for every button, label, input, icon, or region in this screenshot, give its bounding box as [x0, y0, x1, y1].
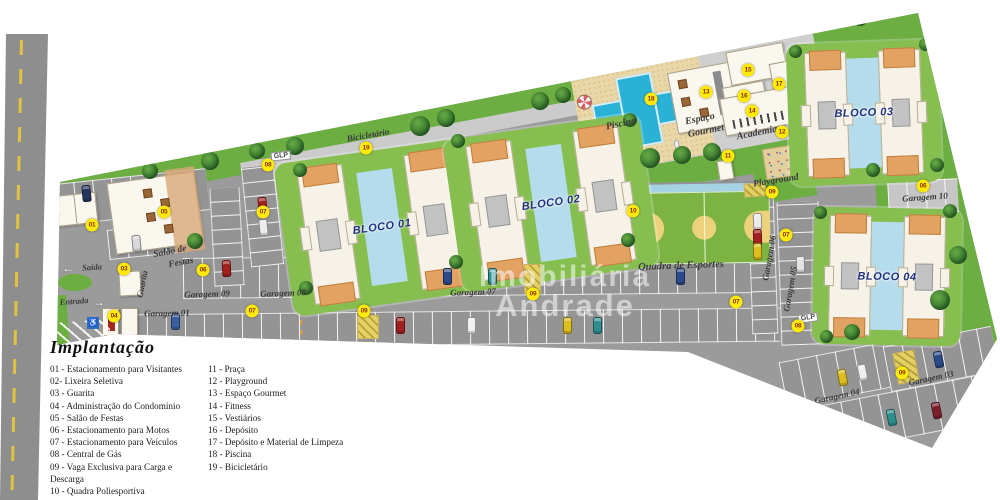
tree-icon	[555, 87, 571, 103]
legend-marker-10: 10	[627, 205, 640, 218]
tree-icon	[293, 163, 307, 177]
tree-icon	[852, 10, 868, 26]
legend-marker-05: 05	[158, 206, 171, 219]
legend-marker-08: 08	[262, 159, 275, 172]
table	[677, 79, 688, 90]
legend-marker-17: 17	[773, 78, 786, 91]
map-label: Entrada	[59, 295, 88, 307]
car	[221, 259, 231, 276]
exit-arrow-icon: ←	[62, 261, 74, 275]
legend-marker-04: 04	[108, 310, 121, 323]
umbrella-icon	[576, 93, 594, 111]
tree-icon	[673, 146, 691, 164]
tree-icon	[866, 163, 880, 177]
table	[146, 212, 156, 222]
table	[164, 224, 174, 234]
tree-icon	[640, 148, 660, 168]
tree-icon	[201, 152, 219, 170]
legend-marker-12: 12	[776, 126, 789, 139]
legend-item: 09 - Vaga Exclusiva para Carga e Descarg…	[50, 461, 208, 485]
tree-icon	[844, 324, 860, 340]
tree-icon	[451, 134, 465, 148]
tree-icon	[249, 143, 265, 159]
watermark: Imobiliária Andrade	[395, 262, 735, 321]
legend: Implantação 01 - Estacionamento para Vis…	[50, 337, 480, 497]
map-label: Garagem 09	[184, 288, 230, 300]
legend-marker-07: 07	[257, 206, 270, 219]
legend-item: 04 - Administração do Condomínio	[50, 400, 208, 412]
tree-icon	[790, 13, 810, 33]
legend-marker-19: 19	[360, 142, 373, 155]
legend-marker-11: 11	[722, 150, 735, 163]
legend-marker-09: 09	[766, 186, 779, 199]
tree-icon	[814, 206, 827, 219]
legend-marker-07: 07	[780, 229, 793, 242]
legend-item: 03 - Guarita	[50, 387, 208, 399]
loading-zone-hatch	[357, 315, 379, 339]
tree-icon	[789, 45, 802, 58]
tree-icon	[410, 116, 430, 136]
tree-icon	[437, 109, 455, 127]
tree-icon	[621, 233, 635, 247]
site-plan: ♿	[0, 0, 1000, 500]
legend-marker-15: 15	[742, 64, 755, 77]
car	[752, 242, 762, 259]
block-bloco-04: BLOCO 04	[812, 207, 962, 347]
legend-item: 15 - Vestiários	[208, 412, 343, 424]
legend-item: 11 - Praça	[208, 363, 343, 375]
entrance-arrow-icon: →	[93, 295, 105, 309]
legend-marker-01: 01	[86, 219, 99, 232]
car	[258, 218, 269, 236]
tree-icon	[930, 158, 944, 172]
legend-marker-07: 07	[730, 296, 743, 309]
map-label: Garagem 08	[260, 287, 306, 299]
legend-marker-08: 08	[792, 320, 805, 333]
legend-item: 12 - Playground	[208, 375, 343, 387]
car	[81, 184, 92, 202]
legend-item: 16 - Depósito	[208, 424, 343, 436]
block-bloco-03: BLOCO 03	[786, 39, 943, 186]
car	[131, 234, 142, 252]
exit-island	[58, 274, 92, 291]
legend-item: 01 - Estacionamento para Visitantes	[50, 363, 208, 375]
road-centerline	[10, 40, 22, 498]
legend-item: 19 - Bicicletário	[208, 461, 343, 473]
legend-title: Implantação	[50, 337, 480, 358]
bloco-label: BLOCO 04	[857, 270, 916, 283]
legend-marker-13: 13	[700, 86, 713, 99]
map-label: Saída	[82, 261, 102, 272]
legend-marker-09: 09	[358, 305, 371, 318]
legend-item: 08 - Central de Gás	[50, 448, 208, 460]
legend-marker-18: 18	[645, 93, 658, 106]
legend-marker-09: 09	[527, 288, 540, 301]
tree-icon	[919, 38, 932, 51]
tree-icon	[820, 330, 833, 343]
legend-item: 13 - Espaço Gourmet	[208, 387, 343, 399]
map-label: Garagem 01	[144, 308, 190, 319]
legend-column-2: 11 - Praça12 - Playground13 - Espaço Gou…	[208, 363, 343, 497]
legend-item: 10 - Quadra Poliesportiva	[50, 485, 208, 497]
legend-item: 07 - Estacionamento para Veículos	[50, 436, 208, 448]
legend-item: 17 - Depósito e Material de Limpeza	[208, 436, 343, 448]
tree-icon	[531, 92, 549, 110]
admin-building-2	[121, 308, 138, 336]
legend-marker-09: 09	[896, 367, 909, 380]
legend-item: 14 - Fitness	[208, 400, 343, 412]
watermark-line2: Andrade	[395, 290, 735, 321]
legend-item: 02- Lixeira Seletiva	[50, 375, 208, 387]
tree-icon	[187, 233, 203, 249]
legend-item: 05 - Salão de Festas	[50, 412, 208, 424]
tree-icon	[703, 143, 721, 161]
tree-icon	[943, 204, 957, 218]
map-label: Garagem 02	[789, 409, 836, 428]
table	[143, 188, 153, 198]
handicap-space: ♿	[87, 317, 99, 329]
legend-marker-06: 06	[917, 180, 930, 193]
tree-icon	[949, 246, 967, 264]
legend-marker-02: 02	[43, 215, 56, 228]
table	[681, 97, 692, 108]
bloco-label: BLOCO 03	[834, 106, 893, 120]
legend-item: 06 - Estacionamento para Motos	[50, 424, 208, 436]
legend-marker-14: 14	[746, 105, 759, 118]
tree-icon	[945, 110, 965, 130]
legend-marker-06: 06	[197, 264, 210, 277]
tree-icon	[930, 290, 950, 310]
legend-column-1: 01 - Estacionamento para Visitantes02- L…	[50, 363, 208, 497]
legend-item: 18 - Piscina	[208, 448, 343, 460]
legend-marker-03: 03	[118, 263, 131, 276]
car	[752, 212, 762, 229]
legend-marker-07: 07	[246, 305, 259, 318]
tree-icon	[142, 163, 158, 179]
legend-marker-16: 16	[738, 90, 751, 103]
tree-icon	[731, 19, 749, 37]
